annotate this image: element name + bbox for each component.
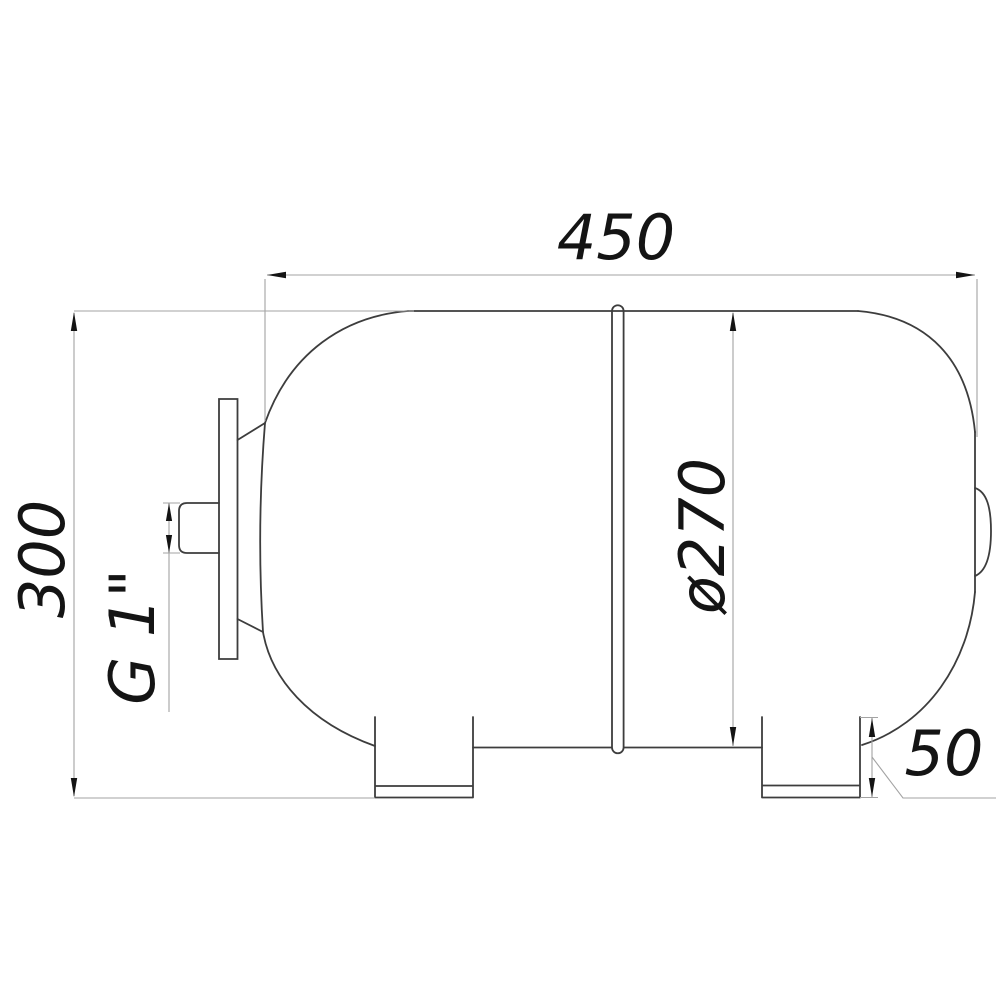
- arrow-length-left: [267, 272, 286, 278]
- technical-drawing-page: 450 300 ø270 G 1" 50: [0, 0, 1000, 1000]
- tank-end-cap-top-right: [858, 311, 975, 432]
- right-foot: [762, 717, 860, 798]
- arrow-height-bottom: [71, 778, 77, 797]
- dim-height-label: 300: [6, 500, 79, 618]
- thread-size-label: G 1": [96, 569, 169, 705]
- flange-cone-top: [238, 423, 266, 440]
- inlet-nozzle: [179, 503, 219, 553]
- tank-end-cap-left-edge: [260, 423, 265, 632]
- tank-dimension-drawing: 450 300 ø270 G 1" 50: [0, 0, 1000, 1000]
- dim-foot-height-label: 50: [905, 717, 984, 790]
- arrow-nozzle-top: [166, 503, 172, 521]
- tank-body: [179, 305, 991, 797]
- dimension-labels: 450 300 ø270 G 1" 50: [6, 201, 983, 790]
- arrow-height-top: [71, 312, 77, 331]
- arrow-length-right: [956, 272, 975, 278]
- flange-cone-bottom: [238, 619, 264, 632]
- left-foot: [375, 717, 473, 798]
- dim-diameter-label: ø270: [666, 458, 739, 615]
- arrow-diameter-bottom: [730, 727, 736, 746]
- arrow-nozzle-bottom: [166, 535, 172, 553]
- air-valve-bump: [975, 488, 991, 576]
- arrow-foot-bottom: [869, 778, 875, 797]
- dimension-lines: [74, 275, 996, 798]
- flange-plate: [219, 399, 238, 659]
- tank-end-cap-bottom-left: [263, 632, 375, 746]
- dimension-arrows: [71, 272, 975, 797]
- arrow-foot-top: [869, 718, 875, 737]
- tank-end-cap-top-left: [265, 311, 408, 423]
- arrow-diameter-top: [730, 312, 736, 331]
- weld-seam: [612, 305, 624, 753]
- dim-length-label: 450: [557, 201, 675, 274]
